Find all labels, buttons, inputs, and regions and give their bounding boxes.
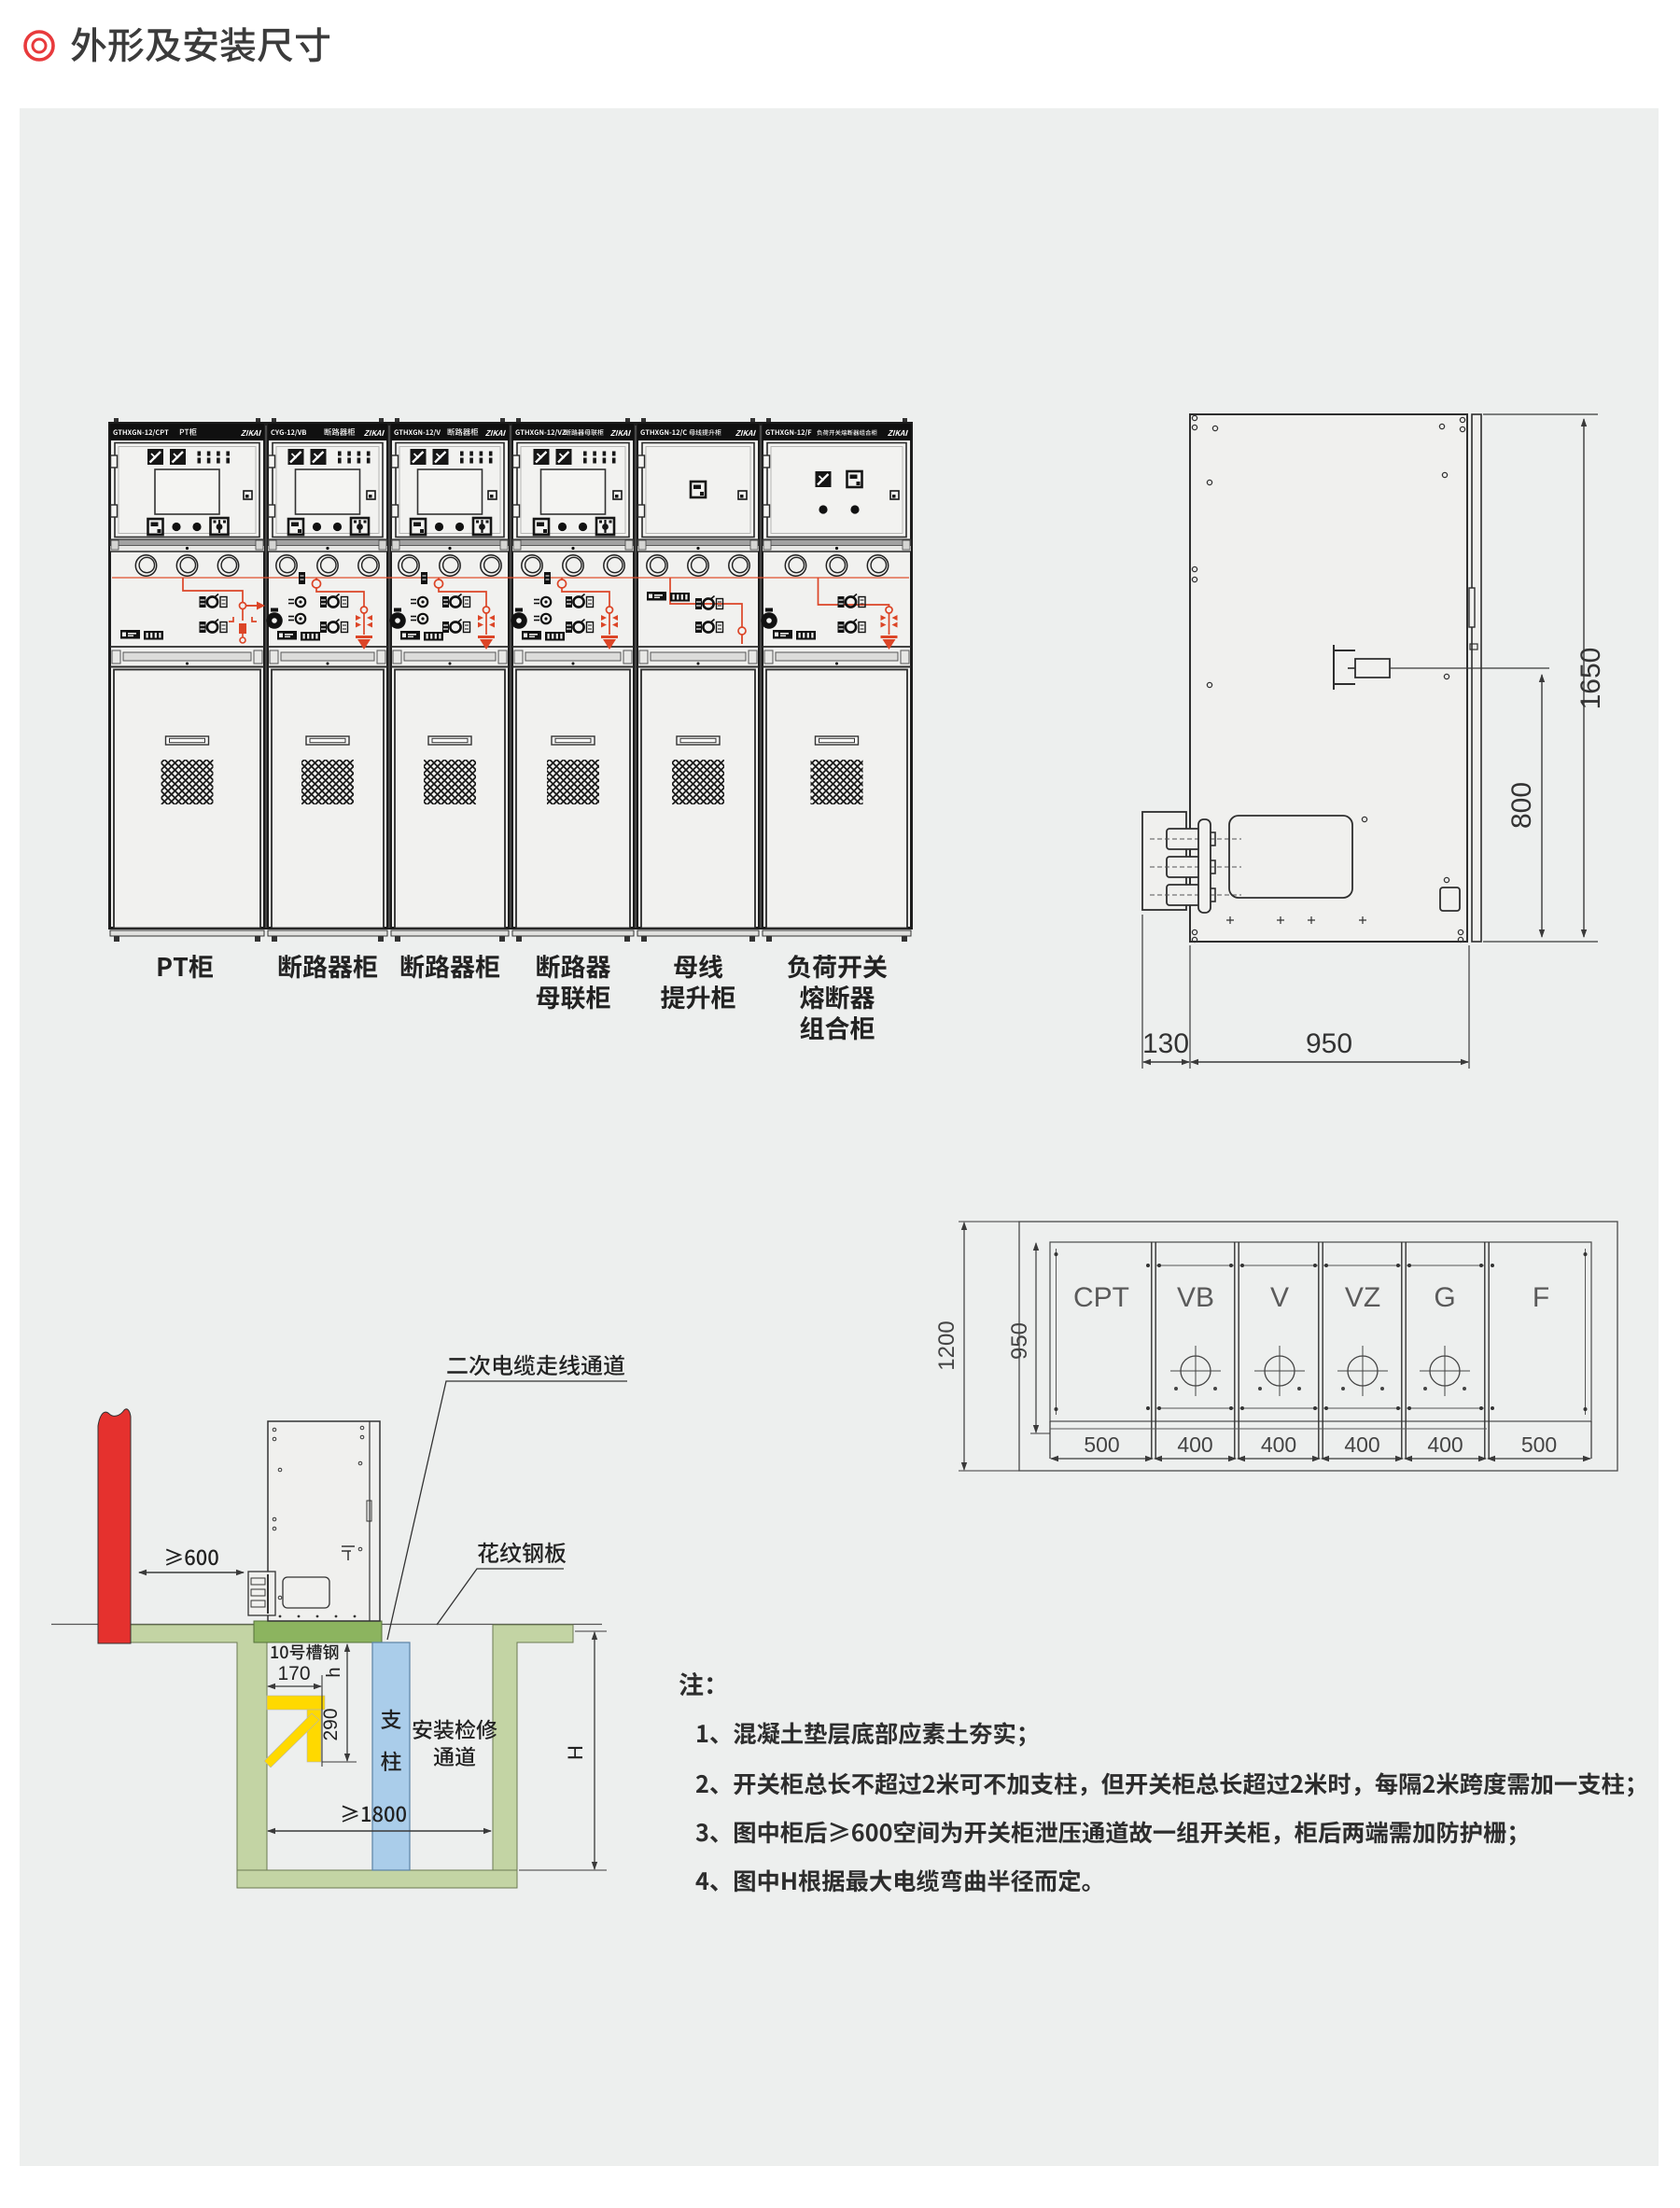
svg-text:G: G — [1434, 1282, 1455, 1313]
svg-text:400: 400 — [1261, 1432, 1296, 1457]
svg-text:V: V — [1270, 1282, 1289, 1313]
svg-text:1200: 1200 — [934, 1321, 959, 1370]
svg-text:F: F — [1533, 1282, 1549, 1313]
svg-text:H: H — [564, 1745, 587, 1760]
svg-text:400: 400 — [1344, 1432, 1379, 1457]
svg-text:950: 950 — [1007, 1322, 1032, 1360]
svg-text:400: 400 — [1177, 1432, 1212, 1457]
svg-text:h: h — [324, 1667, 344, 1677]
svg-text:VZ: VZ — [1345, 1282, 1380, 1313]
svg-text:130: 130 — [1142, 1028, 1189, 1059]
svg-text:500: 500 — [1521, 1432, 1557, 1457]
svg-text:170: 170 — [277, 1663, 310, 1684]
svg-text:950: 950 — [1306, 1028, 1352, 1059]
svg-text:400: 400 — [1427, 1432, 1463, 1457]
svg-text:800: 800 — [1506, 782, 1537, 829]
svg-text:CPT: CPT — [1073, 1282, 1129, 1313]
svg-text:1650: 1650 — [1575, 648, 1606, 710]
svg-text:VB: VB — [1177, 1282, 1214, 1313]
svg-text:500: 500 — [1084, 1432, 1119, 1457]
svg-text:290: 290 — [320, 1708, 342, 1740]
